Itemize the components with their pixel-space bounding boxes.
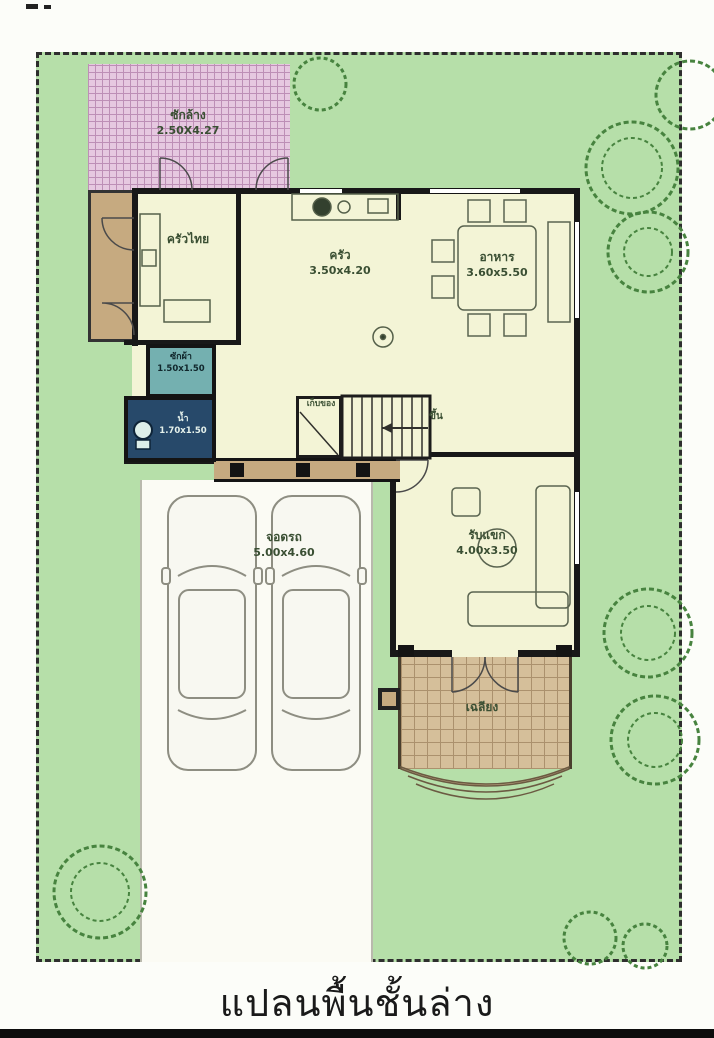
kitchen-label: ครัว 3.50x4.20 xyxy=(280,248,400,278)
porch-steps xyxy=(401,767,569,799)
storage-label: เก็บของ xyxy=(296,399,346,410)
living-label: รับแขก 4.00x3.50 xyxy=(427,528,547,558)
stove-icon xyxy=(292,194,398,220)
plan-linework xyxy=(0,0,714,1038)
scan-edge-bar xyxy=(0,1029,714,1038)
counter-sink-icon xyxy=(140,214,210,322)
stairs-up-label: ขึ้น xyxy=(418,410,454,423)
floor-plan-page: ซักล้าง 2.50X4.27 ครัวไทย ครัว 3.50x4.20… xyxy=(0,0,714,1038)
laundry-label: ซักผ้า 1.50x1.50 xyxy=(148,352,214,375)
bathroom-label: น้ำ 1.70x1.50 xyxy=(148,414,218,437)
wash-yard-label: ซักล้าง 2.50X4.27 xyxy=(128,108,248,138)
porch-label: เฉลียง xyxy=(432,700,532,716)
carport-label: จอดรถ 5.00x4.60 xyxy=(224,530,344,560)
light-fixture-icon xyxy=(373,327,393,347)
plan-title: แปลนพื้นชั้นล่าง xyxy=(0,972,714,1033)
dining-label: อาหาร 3.60x5.50 xyxy=(437,250,557,280)
thai-kitchen-label: ครัวไทย xyxy=(138,232,238,248)
